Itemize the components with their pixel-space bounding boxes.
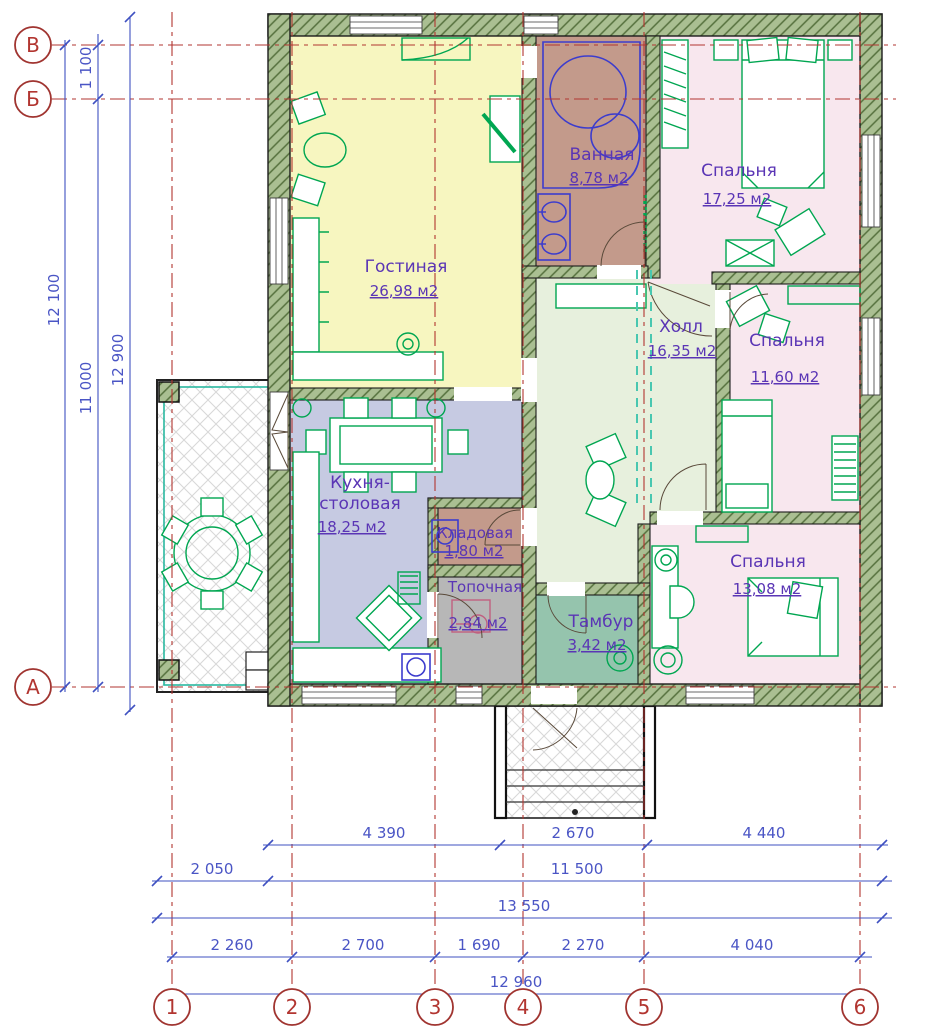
svg-text:1: 1	[166, 995, 179, 1019]
dim-2700: 2 700	[342, 936, 385, 954]
dim-11500: 11 500	[551, 860, 604, 878]
area-bath: 8,78 м2	[569, 169, 628, 187]
area-boiler: 2,84 м2	[448, 614, 507, 632]
area-vestibule: 3,42 м2	[567, 636, 626, 654]
axis-circle-col-2: 2	[274, 989, 310, 1025]
axis-circle-col-6: 6	[842, 989, 878, 1025]
room-vestibule	[536, 583, 638, 684]
label-bath: Ванная	[570, 145, 635, 165]
label-boiler: Топочная	[447, 578, 522, 596]
entry-door-opening	[531, 686, 577, 704]
window	[302, 686, 396, 704]
area-hall: 16,35 м2	[648, 342, 717, 360]
axis-circle-row-b: Б	[15, 81, 51, 117]
area-living: 26,98 м2	[370, 282, 439, 300]
window	[524, 16, 558, 34]
svg-text:4: 4	[517, 995, 530, 1019]
dim-left-11000: 11 000	[77, 362, 95, 415]
window	[686, 686, 754, 704]
dim-12960: 12 960	[490, 973, 543, 991]
svg-text:5: 5	[638, 995, 651, 1019]
axis-circle-row-a: А	[15, 669, 51, 705]
dim-4390: 4 390	[363, 824, 406, 842]
label-kitchen-2: столовая	[319, 494, 401, 514]
svg-text:6: 6	[854, 995, 867, 1019]
label-kitchen-1: Кухня-	[330, 473, 390, 493]
label-pantry: Кладовая	[437, 524, 513, 542]
label-bedroom2: Спальня	[749, 331, 825, 351]
dim-2260: 2 260	[211, 936, 254, 954]
area-bedroom3: 13,08 м2	[733, 580, 802, 598]
window	[862, 318, 880, 395]
dim-13550: 13 550	[498, 897, 551, 915]
terrace-post	[159, 660, 179, 680]
svg-text:2: 2	[286, 995, 299, 1019]
window	[270, 198, 288, 284]
terrace-door	[270, 392, 288, 470]
area-pantry: 1,80 м2	[444, 542, 503, 560]
dim-left-12900: 12 900	[109, 334, 127, 387]
label-bedroom3: Спальня	[730, 552, 806, 572]
axis-circle-col-3: 3	[417, 989, 453, 1025]
dim-1690: 1 690	[458, 936, 501, 954]
dim-left-12100: 12 100	[45, 274, 63, 327]
axis-circle-col-5: 5	[626, 989, 662, 1025]
area-kitchen: 18,25 м2	[318, 518, 387, 536]
window	[456, 686, 482, 704]
dim-2270: 2 270	[562, 936, 605, 954]
label-hall: Холл	[659, 317, 703, 337]
dim-4440: 4 440	[743, 824, 786, 842]
window	[350, 16, 422, 34]
dim-2670: 2 670	[552, 824, 595, 842]
bottom-dimensions: 4 390 2 670 4 440 2 050 11 500 13 550 2 …	[152, 824, 892, 999]
floor-plan-page: 12 100 1 100 11 000 12 900 4 390 2 670 4…	[0, 0, 947, 1032]
label-living: Гостиная	[365, 257, 448, 277]
floor-plan-drawing: 12 100 1 100 11 000 12 900 4 390 2 670 4…	[0, 0, 947, 1032]
axis-circle-col-4: 4	[505, 989, 541, 1025]
svg-text:Б: Б	[26, 87, 40, 111]
dim-2050: 2 050	[191, 860, 234, 878]
axis-circle-col-1: 1	[154, 989, 190, 1025]
room-living	[290, 36, 536, 388]
window	[862, 135, 880, 227]
svg-text:А: А	[26, 675, 40, 699]
svg-text:3: 3	[429, 995, 442, 1019]
label-bedroom1: Спальня	[701, 161, 777, 181]
entrance-porch	[495, 706, 655, 818]
dim-left-1100: 1 100	[77, 47, 95, 90]
area-bedroom1: 17,25 м2	[703, 190, 772, 208]
dim-4040: 4 040	[731, 936, 774, 954]
area-bedroom2: 11,60 м2	[751, 368, 820, 386]
svg-text:В: В	[26, 33, 40, 57]
terrace-post	[159, 382, 179, 402]
label-vestibule: Тамбур	[568, 612, 634, 632]
axis-circle-row-v: В	[15, 27, 51, 63]
left-dimensions: 12 100 1 100 11 000 12 900	[45, 12, 135, 715]
